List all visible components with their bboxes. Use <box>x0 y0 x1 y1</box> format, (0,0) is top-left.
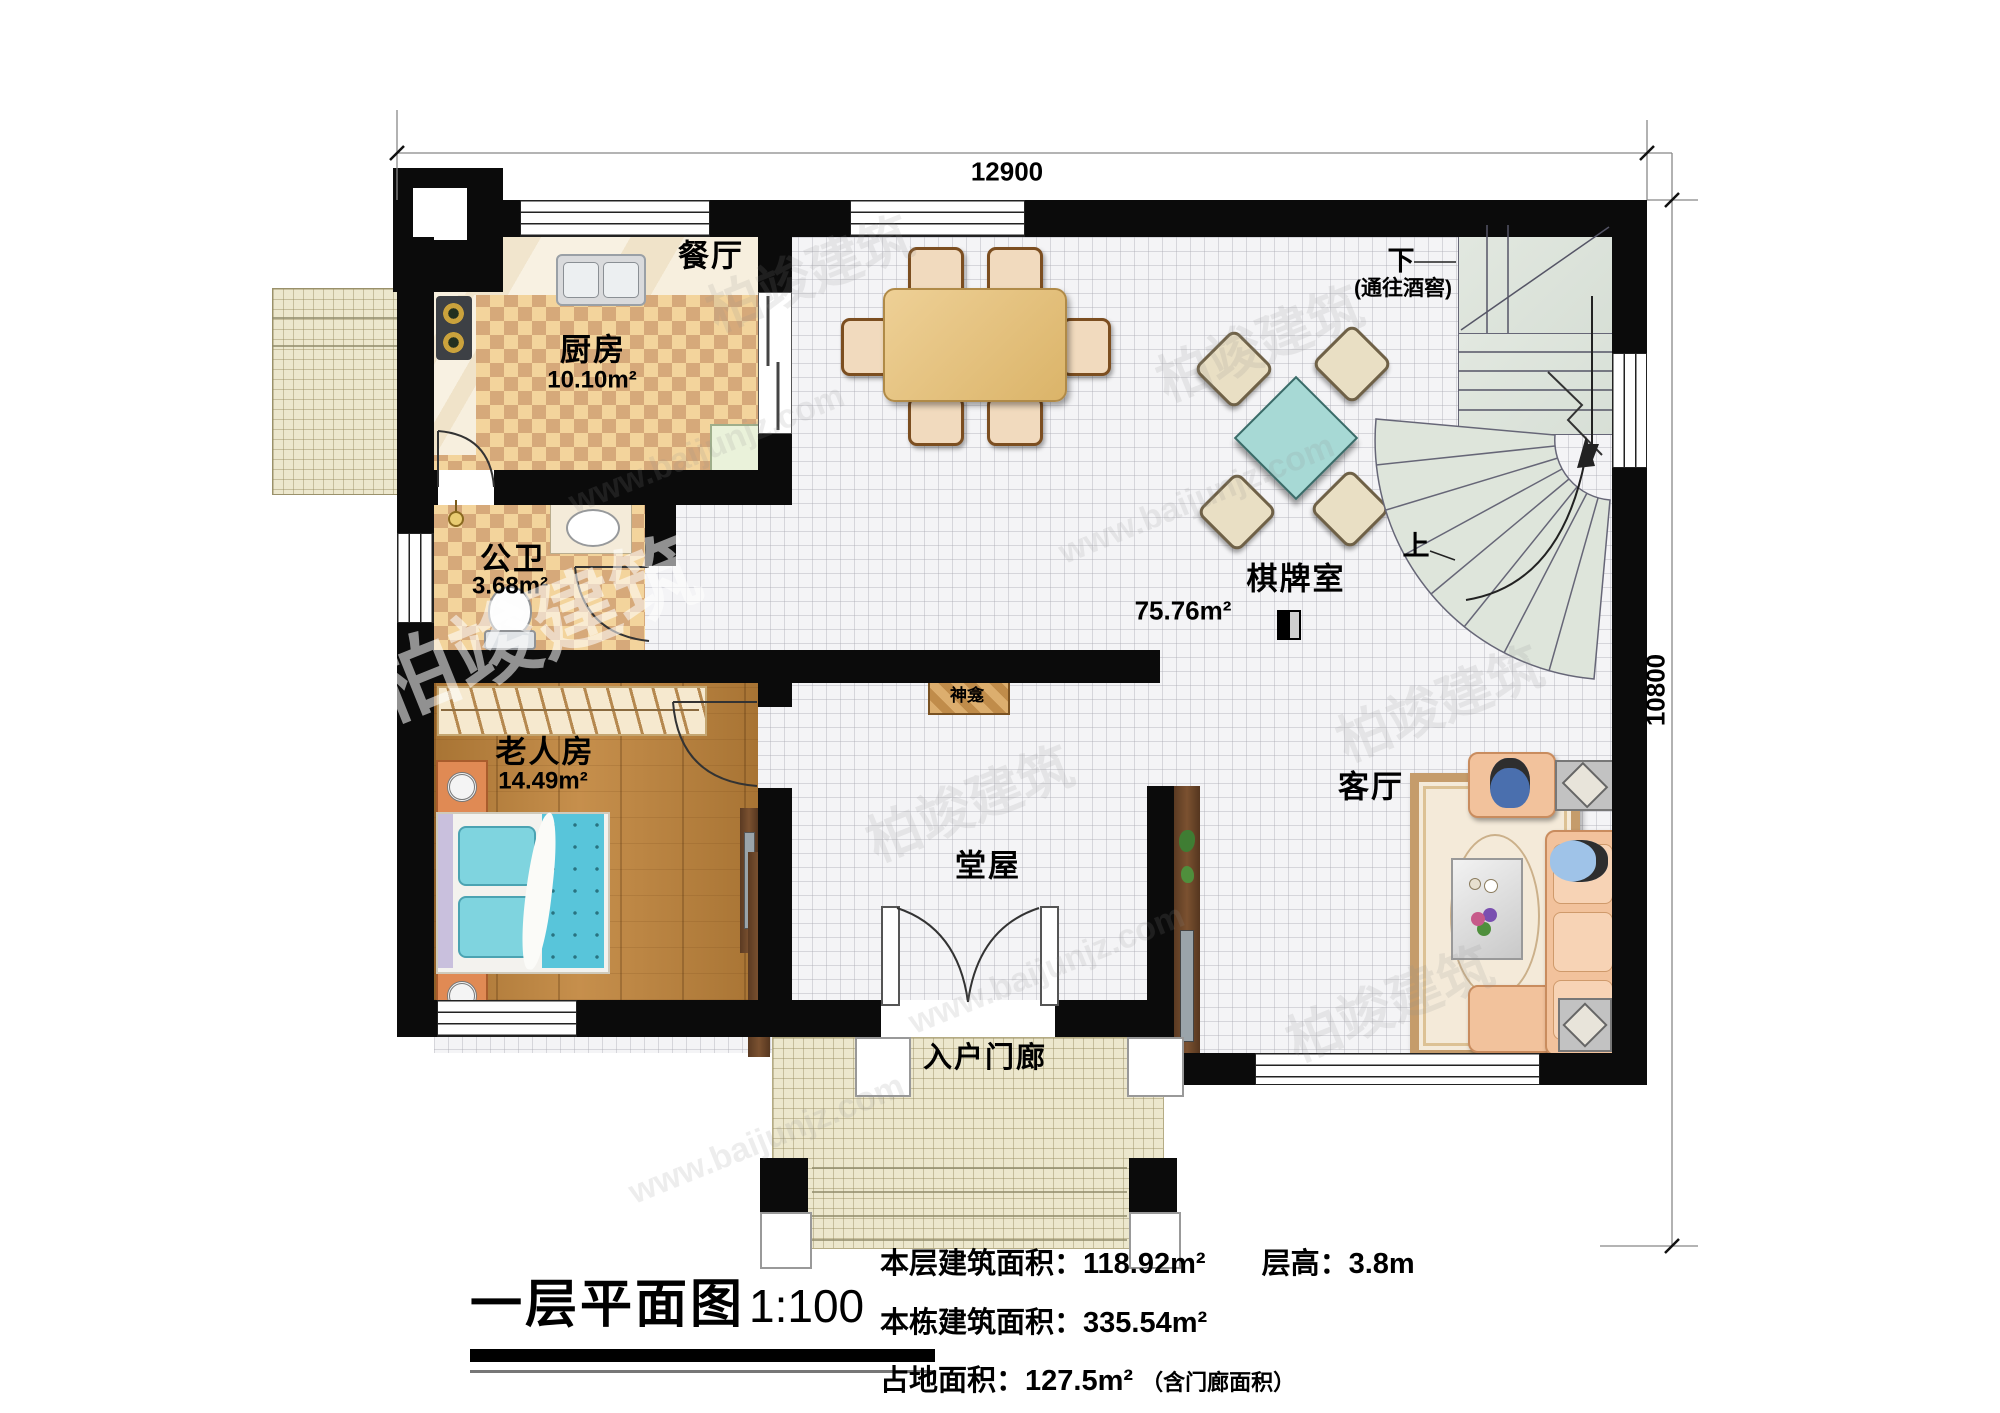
stats-line-1: 本层建筑面积：118.92m² 层高：3.8m <box>880 1240 1680 1282</box>
tv-icon <box>1180 930 1194 1042</box>
burner-icon <box>443 332 464 353</box>
bed <box>436 812 610 974</box>
title-underline-thick <box>470 1349 935 1362</box>
wall-bedroom-east-upper <box>758 650 792 707</box>
kitchen-appliance <box>710 424 760 476</box>
window-bathroom-west <box>397 533 434 623</box>
lamp-icon <box>447 772 477 802</box>
porch-pillar-black <box>760 1158 808 1212</box>
entry-door-leaf <box>881 906 900 1006</box>
bathroom-vanity <box>550 500 632 554</box>
label-elder-room-area: 14.49m² <box>498 768 587 793</box>
armchair <box>1468 985 1556 1053</box>
label-stair-down-note: (通往酒窖) <box>1354 278 1452 300</box>
side-table <box>1558 998 1612 1052</box>
stair-flight <box>1458 333 1614 435</box>
window-dining-north <box>850 200 1025 237</box>
kitchen-sink <box>556 254 646 306</box>
label-kitchen-area: 10.10m² <box>547 367 636 392</box>
sink-basin-right <box>603 262 639 298</box>
plant-icon <box>1179 830 1195 852</box>
coffee-table <box>1451 858 1523 960</box>
window-stair-east <box>1612 353 1647 468</box>
person-sitting <box>1490 758 1530 808</box>
label-chess-room: 棋牌室 <box>1247 564 1346 597</box>
dining-table <box>883 288 1067 402</box>
plant-icon <box>1181 866 1194 883</box>
dining-chair <box>987 396 1043 446</box>
label-bathroom-area: 3.68m² <box>472 573 548 598</box>
stats-block: 本层建筑面积：118.92m² 层高：3.8m 本栋建筑面积：335.54m² … <box>880 1240 1680 1399</box>
floor-area-value: 118.92m² <box>1083 1248 1206 1280</box>
entry-door-leaf <box>1040 906 1059 1006</box>
window-living-south <box>1255 1053 1540 1085</box>
wall-living-west-stub <box>1147 786 1174 1078</box>
footprint-label: 占地面积： <box>880 1365 1025 1397</box>
label-porch: 入户门廊 <box>923 1043 1047 1073</box>
dining-chair <box>1061 318 1111 376</box>
burner-icon <box>443 303 464 324</box>
label-stair-up: 上 <box>1403 532 1430 560</box>
chess-room-door-glyph <box>1277 610 1301 640</box>
wardrobe-rail <box>441 709 699 711</box>
wall-bathroom-east <box>645 500 676 566</box>
pillow <box>458 826 536 886</box>
porch-pillar-white <box>855 1037 911 1097</box>
side-table <box>1555 760 1615 811</box>
dimension-width: 12900 <box>971 158 1043 185</box>
label-living-room: 客厅 <box>1338 772 1404 805</box>
floor-area-label: 本层建筑面积： <box>880 1248 1083 1280</box>
title-block: 一层平面图 1:100 <box>470 1262 940 1373</box>
window-bedroom-south <box>437 1000 577 1037</box>
page-title-scale: 1:100 <box>749 1279 864 1333</box>
page-title: 一层平面图 <box>470 1262 745 1337</box>
stair-landing <box>1458 225 1614 335</box>
sliding-door-kitchen <box>758 292 792 434</box>
label-bathroom: 公卫 <box>480 544 546 577</box>
living-tv-cabinet <box>1174 786 1200 1078</box>
teacup-icon <box>1469 878 1481 890</box>
side-terrace <box>272 288 399 495</box>
sofa-cushion <box>1553 912 1613 972</box>
chimney-flue <box>413 188 467 240</box>
label-stair-down: 下 <box>1388 247 1415 275</box>
porch-pillar-black <box>1129 1158 1177 1212</box>
wardrobe <box>437 686 707 736</box>
wash-basin-icon <box>566 509 620 547</box>
window-kitchen-north <box>520 200 710 237</box>
label-kitchen: 厨房 <box>560 335 626 368</box>
stove <box>436 296 472 360</box>
porch-pillar-white <box>1127 1037 1184 1097</box>
headboard <box>438 814 453 968</box>
nightstand <box>436 760 488 814</box>
dining-chair <box>908 396 964 446</box>
porch-pillar-white <box>760 1212 812 1269</box>
label-shrine: 神龛 <box>950 687 984 705</box>
footprint-note: （含门廊面积） <box>1141 1370 1295 1395</box>
footprint-value: 127.5m² <box>1025 1365 1133 1397</box>
stats-line-2: 本栋建筑面积：335.54m² <box>880 1299 1680 1341</box>
label-open-area: 75.76m² <box>1135 597 1232 624</box>
story-height-value: 3.8m <box>1349 1248 1415 1280</box>
story-height-label: 层高： <box>1262 1248 1349 1280</box>
sink-basin-left <box>563 262 599 298</box>
wall-bedroom-east-lower <box>758 788 792 1037</box>
total-area-label: 本栋建筑面积： <box>880 1307 1083 1339</box>
entry-door-opening <box>881 1000 1055 1037</box>
person-sitting <box>1550 840 1608 882</box>
label-elder-room: 老人房 <box>496 737 595 770</box>
kitchen-door-opening <box>438 470 494 505</box>
toilet-tank <box>484 630 536 650</box>
flower-vase-icon <box>1471 912 1485 926</box>
label-hall: 堂屋 <box>955 851 1021 884</box>
total-area-value: 335.54m² <box>1083 1307 1207 1339</box>
floor-plan: 餐厅 厨房 10.10m² 公卫 3.68m² 老人房 14.49m² 棋牌室 … <box>0 0 2000 1413</box>
stats-line-3: 占地面积：127.5m² （含门廊面积） <box>880 1357 1680 1399</box>
dimension-height: 10800 <box>1642 654 1669 726</box>
wall-left <box>397 237 434 1037</box>
title-underline-thin <box>470 1370 935 1373</box>
label-dining: 餐厅 <box>678 241 744 274</box>
